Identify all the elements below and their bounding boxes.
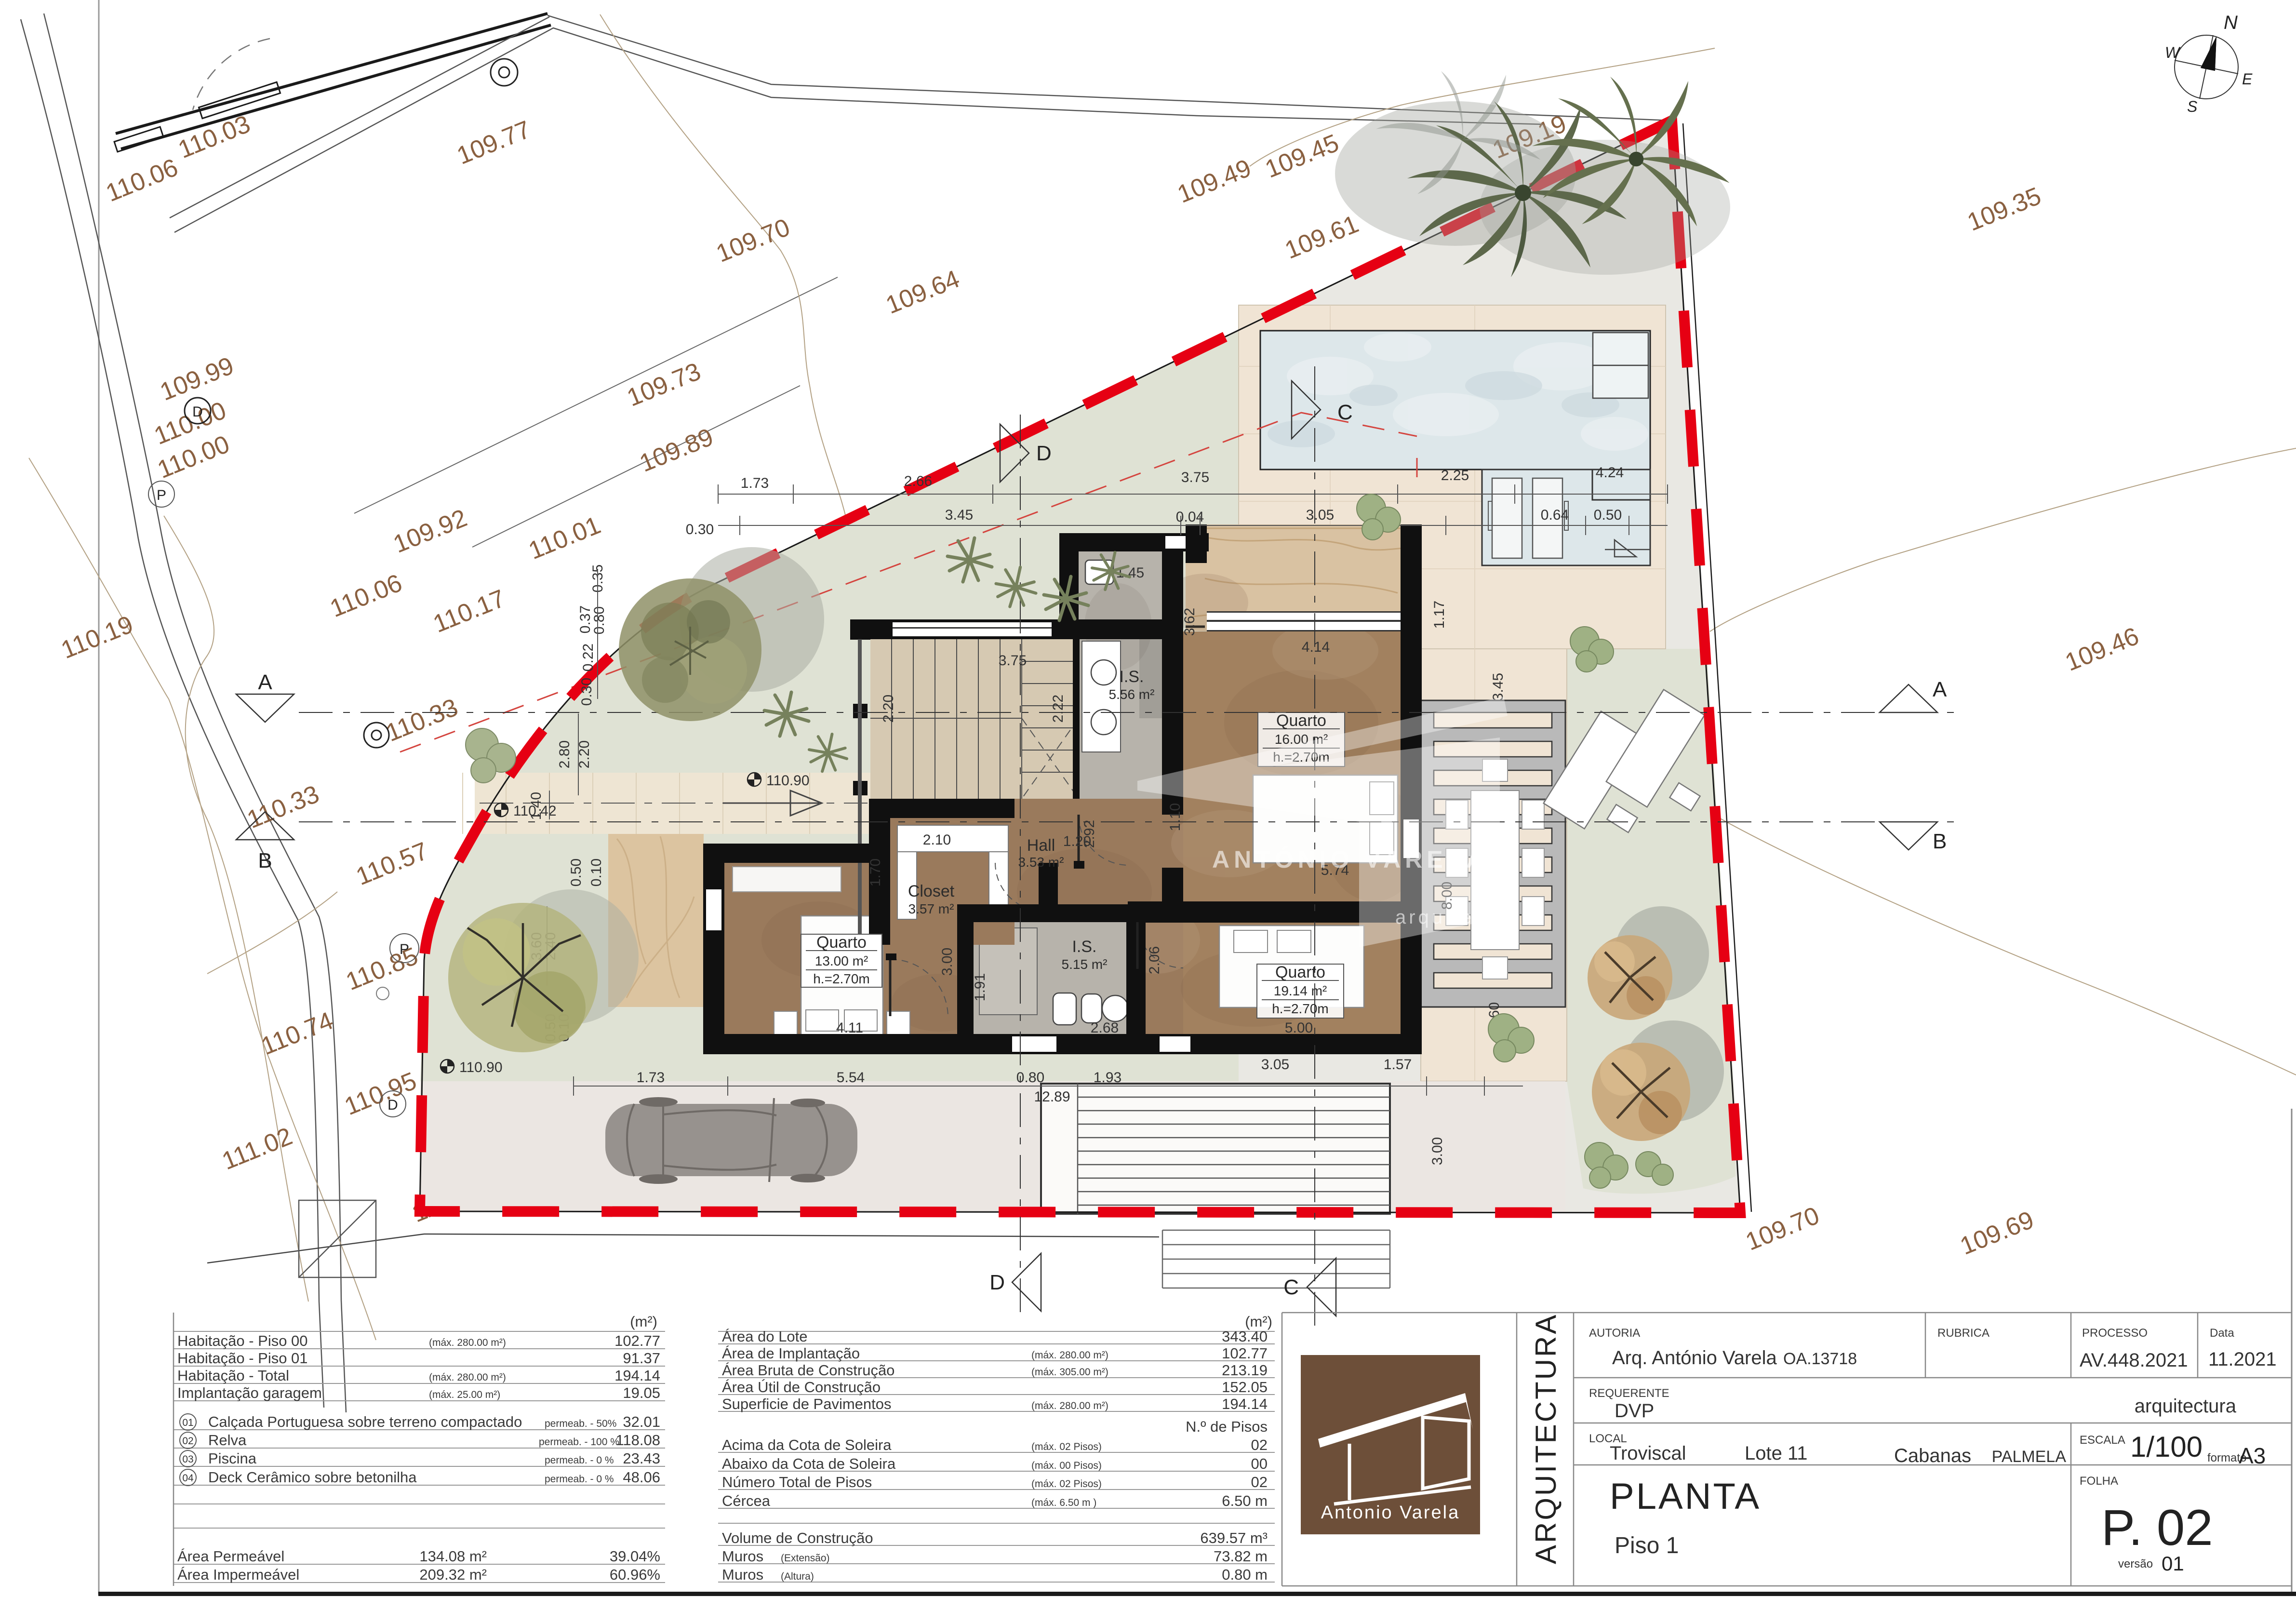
- svg-text:3.00: 3.00: [1429, 1137, 1445, 1165]
- svg-text:h.=2.70m: h.=2.70m: [813, 971, 870, 986]
- svg-text:102.77: 102.77: [614, 1332, 660, 1349]
- svg-text:Área de Implantação: Área de Implantação: [722, 1345, 860, 1362]
- svg-text:Troviscal: Troviscal: [1610, 1443, 1686, 1464]
- svg-text:2.80: 2.80: [557, 740, 573, 768]
- svg-text:194.14: 194.14: [1222, 1396, 1268, 1412]
- svg-text:73.82 m: 73.82 m: [1214, 1548, 1268, 1565]
- svg-text:1.17: 1.17: [1431, 601, 1447, 629]
- svg-text:RUBRICA: RUBRICA: [1937, 1327, 1989, 1340]
- svg-text:0.22: 0.22: [580, 644, 596, 671]
- svg-text:A3: A3: [2239, 1443, 2266, 1468]
- svg-text:(máx. 6.50 m ): (máx. 6.50 m ): [1031, 1497, 1096, 1508]
- svg-text:1.57: 1.57: [1384, 1057, 1412, 1073]
- svg-text:Lote 11: Lote 11: [1745, 1443, 1808, 1464]
- svg-text:(Altura): (Altura): [781, 1571, 814, 1582]
- svg-text:0.10: 0.10: [588, 859, 604, 886]
- svg-text:Área do Lote: Área do Lote: [722, 1328, 808, 1345]
- svg-text:DVP: DVP: [1615, 1400, 1654, 1422]
- svg-text:639.57 m³: 639.57 m³: [1200, 1530, 1268, 1546]
- svg-text:118.08: 118.08: [615, 1432, 660, 1449]
- svg-text:2.06: 2.06: [1147, 946, 1162, 974]
- svg-text:(Extensão): (Extensão): [781, 1553, 830, 1564]
- svg-text:A: A: [258, 671, 272, 694]
- svg-text:AV.448.2021: AV.448.2021: [2080, 1350, 2188, 1371]
- svg-text:Acima da Cota de Soleira: Acima da Cota de Soleira: [722, 1436, 892, 1453]
- svg-text:3.00: 3.00: [939, 948, 955, 976]
- svg-text:1.91: 1.91: [972, 973, 988, 1001]
- svg-text:Deck Cerâmico sobre betonilha: Deck Cerâmico sobre betonilha: [208, 1469, 417, 1486]
- svg-text:N.º de Pisos: N.º de Pisos: [1186, 1418, 1268, 1435]
- svg-text:Muros: Muros: [722, 1548, 763, 1565]
- svg-text:(máx. 280.00 m²): (máx. 280.00 m²): [429, 1337, 506, 1348]
- svg-text:A: A: [1933, 678, 1947, 701]
- svg-text:(máx. 280.00 m²): (máx. 280.00 m²): [429, 1372, 506, 1383]
- svg-text:versão: versão: [2118, 1557, 2153, 1570]
- svg-text:Cabanas: Cabanas: [1894, 1445, 1971, 1466]
- svg-text:5.00: 5.00: [1285, 1020, 1313, 1036]
- svg-text:Arq. António Varela: Arq. António Varela: [1612, 1347, 1777, 1369]
- svg-text:Antonio Varela: Antonio Varela: [1321, 1503, 1460, 1523]
- svg-text:213.19: 213.19: [1222, 1362, 1268, 1379]
- svg-text:0.80: 0.80: [591, 606, 607, 634]
- svg-text:Hall: Hall: [1027, 836, 1055, 855]
- svg-text:permeab. - 0 %: permeab. - 0 %: [545, 1474, 614, 1485]
- svg-text:1/100: 1/100: [2130, 1431, 2203, 1463]
- svg-text:32.01: 32.01: [623, 1413, 660, 1430]
- svg-text:5.56 m²: 5.56 m²: [1109, 687, 1155, 702]
- svg-text:13.00 m²: 13.00 m²: [815, 953, 868, 968]
- svg-text:1.73: 1.73: [637, 1070, 665, 1086]
- svg-text:209.32 m²: 209.32 m²: [419, 1566, 487, 1583]
- svg-text:FOLHA: FOLHA: [2080, 1475, 2118, 1488]
- svg-text:B: B: [258, 849, 272, 872]
- svg-text:Implantação garagem: Implantação garagem: [177, 1384, 322, 1401]
- svg-text:P: P: [157, 487, 166, 503]
- svg-text:0.64: 0.64: [1541, 507, 1569, 523]
- svg-text:AUTORIA: AUTORIA: [1589, 1327, 1640, 1340]
- svg-text:(m²): (m²): [630, 1313, 657, 1330]
- svg-text:0.30: 0.30: [579, 678, 595, 706]
- svg-text:E: E: [2242, 70, 2253, 88]
- svg-text:91.37: 91.37: [623, 1350, 660, 1367]
- svg-text:PALMELA: PALMELA: [1992, 1448, 2067, 1466]
- svg-text:I.S.: I.S.: [1072, 938, 1096, 956]
- svg-text:D: D: [192, 404, 203, 420]
- svg-text:Habitação - Piso 00: Habitação - Piso 00: [177, 1332, 308, 1349]
- svg-text:194.14: 194.14: [614, 1367, 660, 1384]
- svg-text:01: 01: [182, 1417, 193, 1428]
- svg-text:5.15 m²: 5.15 m²: [1062, 957, 1108, 972]
- svg-text:h.=2.70m: h.=2.70m: [1272, 1001, 1329, 1016]
- svg-text:152.05: 152.05: [1222, 1379, 1268, 1396]
- svg-text:D: D: [989, 1271, 1005, 1294]
- svg-text:3.75: 3.75: [1181, 470, 1209, 485]
- svg-text:Calçada Portuguesa sobre terre: Calçada Portuguesa sobre terreno compact…: [208, 1413, 522, 1430]
- svg-text:Área Útil de Construção: Área Útil de Construção: [722, 1379, 881, 1396]
- svg-text:2.68: 2.68: [1091, 1020, 1119, 1036]
- svg-text:12.89: 12.89: [1034, 1089, 1070, 1105]
- svg-text:Superficie de Pavimentos: Superficie de Pavimentos: [722, 1396, 892, 1412]
- svg-text:48.06: 48.06: [623, 1469, 660, 1486]
- svg-text:Piso 1: Piso 1: [1615, 1533, 1679, 1558]
- svg-text:Muros: Muros: [722, 1566, 763, 1583]
- svg-text:P: P: [400, 941, 409, 957]
- svg-text:Relva: Relva: [208, 1432, 247, 1449]
- svg-text:OA.13718: OA.13718: [1783, 1350, 1857, 1368]
- svg-text:ARQUITECTURA: ARQUITECTURA: [1530, 1313, 1562, 1564]
- svg-text:REQUERENTE: REQUERENTE: [1589, 1387, 1669, 1400]
- svg-text:0.50: 0.50: [1594, 507, 1622, 523]
- svg-text:04: 04: [182, 1473, 194, 1484]
- svg-text:Volume de Construção: Volume de Construção: [722, 1530, 873, 1546]
- svg-text:3.05: 3.05: [1261, 1057, 1289, 1073]
- svg-text:5.54: 5.54: [837, 1070, 865, 1086]
- svg-text:(máx. 280.00 m²): (máx. 280.00 m²): [1031, 1350, 1108, 1361]
- svg-text:110.90: 110.90: [459, 1060, 503, 1075]
- svg-text:Número Total de Pisos: Número Total de Pisos: [722, 1474, 872, 1490]
- svg-text:01: 01: [2162, 1552, 2184, 1575]
- svg-text:Closet: Closet: [908, 882, 955, 900]
- svg-text:(máx. 00 Pisos): (máx. 00 Pisos): [1031, 1460, 1102, 1471]
- svg-text:(m²): (m²): [1245, 1313, 1272, 1330]
- svg-text:3.45: 3.45: [945, 507, 973, 523]
- svg-text:1.40: 1.40: [528, 792, 544, 820]
- svg-text:Área Bruta de Construção: Área Bruta de Construção: [722, 1362, 894, 1379]
- svg-text:0.30: 0.30: [686, 522, 714, 537]
- svg-text:1.73: 1.73: [741, 475, 769, 491]
- svg-text:C: C: [1337, 401, 1353, 424]
- svg-text:4.11: 4.11: [836, 1020, 863, 1036]
- svg-text:19.05: 19.05: [623, 1384, 660, 1401]
- svg-text:permeab. - 50%: permeab. - 50%: [545, 1418, 616, 1429]
- svg-text:2.20: 2.20: [881, 695, 896, 723]
- svg-text:ESCALA: ESCALA: [2080, 1434, 2125, 1447]
- svg-text:Quarto: Quarto: [1276, 711, 1326, 730]
- svg-text:110.90: 110.90: [766, 773, 810, 789]
- svg-text:60.96%: 60.96%: [610, 1566, 660, 1583]
- svg-text:343.40: 343.40: [1222, 1328, 1268, 1345]
- svg-text:2.10: 2.10: [923, 832, 951, 848]
- svg-text:(máx. 280.00 m²): (máx. 280.00 m²): [1031, 1400, 1108, 1411]
- svg-text:0.80 m: 0.80 m: [1222, 1566, 1268, 1583]
- svg-text:Quarto: Quarto: [1275, 963, 1325, 981]
- svg-text:W: W: [2165, 44, 2181, 61]
- svg-text:arquitecto: arquitecto: [1395, 907, 1509, 928]
- svg-text:23.43: 23.43: [623, 1450, 660, 1467]
- svg-text:4.14: 4.14: [1302, 639, 1330, 655]
- svg-text:Habitação - Piso 01: Habitação - Piso 01: [177, 1350, 308, 1367]
- svg-text:(máx. 02 Pisos): (máx. 02 Pisos): [1031, 1478, 1102, 1490]
- svg-text:permeab. - 0 %: permeab. - 0 %: [545, 1455, 614, 1466]
- svg-text:2.25: 2.25: [1441, 468, 1469, 483]
- svg-text:1.70: 1.70: [868, 859, 883, 886]
- svg-text:(máx. 305.00 m²): (máx. 305.00 m²): [1031, 1367, 1108, 1378]
- svg-text:N: N: [2224, 12, 2238, 33]
- svg-text:1.10: 1.10: [1167, 803, 1183, 831]
- svg-text:arquitectura: arquitectura: [2135, 1396, 2237, 1417]
- svg-text:S: S: [2187, 98, 2197, 115]
- svg-text:Quarto: Quarto: [816, 933, 867, 952]
- svg-text:Cércea: Cércea: [722, 1492, 771, 1509]
- svg-text:0.50: 0.50: [568, 859, 584, 886]
- svg-text:Abaixo da Cota de Soleira: Abaixo da Cota de Soleira: [722, 1455, 896, 1472]
- svg-text:B: B: [1933, 830, 1947, 853]
- svg-text:0.04: 0.04: [1176, 509, 1204, 525]
- svg-text:39.04%: 39.04%: [610, 1548, 660, 1565]
- svg-text:102.77: 102.77: [1222, 1345, 1268, 1362]
- svg-text:4.24: 4.24: [1596, 465, 1624, 481]
- svg-text:Área Permeável: Área Permeável: [177, 1548, 284, 1565]
- svg-text:3.05: 3.05: [1306, 507, 1334, 523]
- svg-text:D: D: [387, 1097, 398, 1113]
- svg-text:00: 00: [1251, 1455, 1268, 1472]
- svg-text:02: 02: [1251, 1474, 1268, 1490]
- svg-text:I.S.: I.S.: [1119, 668, 1144, 686]
- svg-text:Data: Data: [2210, 1327, 2234, 1340]
- svg-text:Piscina: Piscina: [208, 1450, 257, 1467]
- svg-text:(máx. 25.00 m²): (máx. 25.00 m²): [429, 1389, 500, 1400]
- svg-text:(máx. 02 Pisos): (máx. 02 Pisos): [1031, 1441, 1102, 1452]
- svg-text:3.57 m²: 3.57 m²: [908, 901, 954, 916]
- svg-text:6.50 m: 6.50 m: [1222, 1492, 1268, 1509]
- svg-text:3.62: 3.62: [1182, 608, 1198, 636]
- svg-text:02: 02: [182, 1436, 193, 1447]
- svg-text:C: C: [1283, 1275, 1299, 1299]
- svg-text:03: 03: [182, 1454, 193, 1465]
- svg-text:1.93: 1.93: [1094, 1070, 1121, 1086]
- svg-text:02: 02: [1251, 1436, 1268, 1453]
- svg-text:2.66: 2.66: [904, 473, 932, 489]
- svg-text:2.92: 2.92: [1081, 820, 1097, 848]
- svg-text:3.53 m²: 3.53 m²: [1018, 855, 1064, 870]
- svg-text:3.75: 3.75: [999, 653, 1027, 669]
- svg-text:permeab. - 100 %: permeab. - 100 %: [539, 1436, 619, 1448]
- svg-text:P. 02: P. 02: [2101, 1500, 2213, 1556]
- svg-text:D: D: [1036, 442, 1052, 465]
- svg-text:ANTÓNIO VARELA: ANTÓNIO VARELA: [1212, 846, 1488, 873]
- svg-text:Habitação - Total: Habitação - Total: [177, 1367, 289, 1384]
- svg-text:19.14 m²: 19.14 m²: [1274, 983, 1327, 998]
- svg-text:2.22: 2.22: [1050, 695, 1066, 723]
- svg-text:134.08 m²: 134.08 m²: [419, 1548, 487, 1565]
- svg-text:PLANTA: PLANTA: [1610, 1476, 1761, 1517]
- svg-text:PROCESSO: PROCESSO: [2082, 1327, 2148, 1340]
- svg-text:Área Impermeável: Área Impermeável: [177, 1566, 299, 1583]
- svg-text:11.2021: 11.2021: [2208, 1349, 2277, 1370]
